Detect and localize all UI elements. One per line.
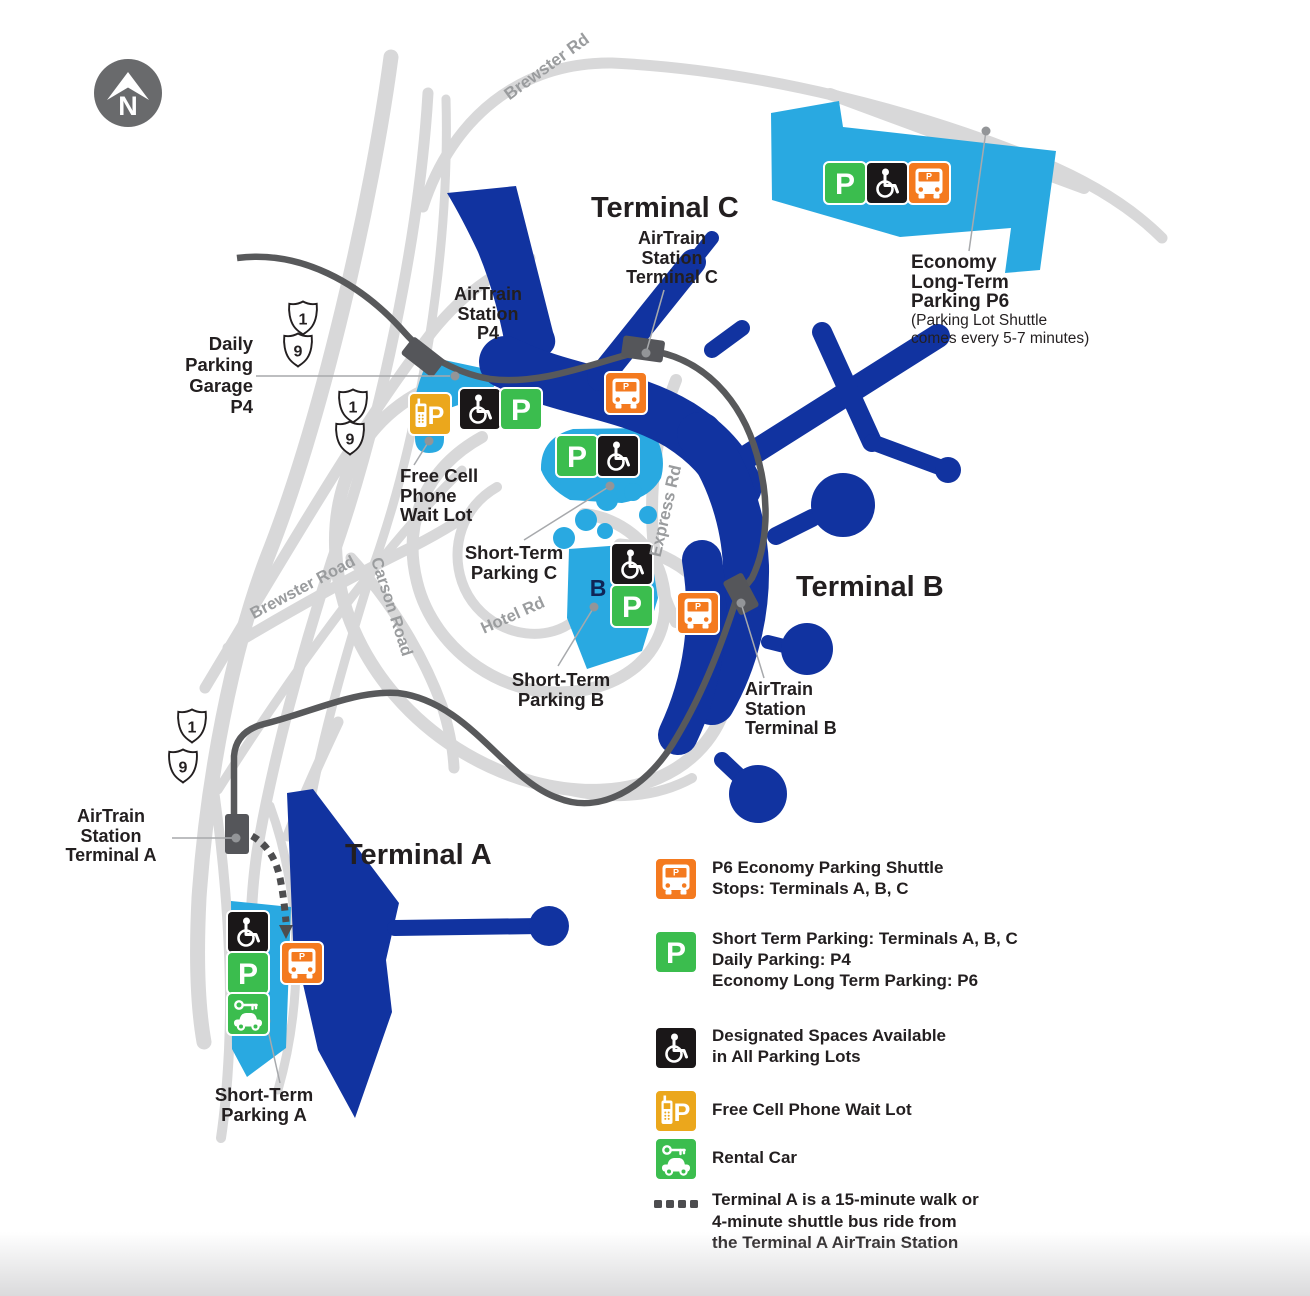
rental-car-icon bbox=[655, 1138, 697, 1180]
rental-car-icon bbox=[227, 993, 269, 1035]
free-cell-phone-label: Free Cell Phone Wait Lot bbox=[400, 466, 478, 525]
compass-north-icon: N bbox=[94, 59, 162, 127]
short-term-parking-icon bbox=[824, 162, 866, 204]
airport-parking-map: P P bbox=[0, 0, 1310, 1296]
airtrain-station-c-label: AirTrain Station Terminal C bbox=[612, 229, 732, 288]
accessible-parking-icon bbox=[597, 435, 639, 477]
cell-phone-lot-icon bbox=[409, 393, 451, 435]
legend-ada-text: Designated Spaces Available in All Parki… bbox=[712, 1025, 946, 1067]
parking-shuttle-icon bbox=[605, 372, 647, 414]
parking-shuttle-icon bbox=[655, 858, 697, 900]
route-shield-number: 9 bbox=[294, 344, 303, 361]
accessible-parking-icon bbox=[227, 911, 269, 953]
parking-shuttle-icon bbox=[908, 162, 950, 204]
short-term-parking-icon bbox=[611, 585, 653, 627]
airtrain-station-p4-label: AirTrain Station P4 bbox=[442, 285, 534, 344]
daily-parking-p4-label: Daily Parking Garage P4 bbox=[160, 333, 253, 417]
airtrain-station-a-label: AirTrain Station Terminal A bbox=[50, 807, 172, 866]
accessible-parking-icon bbox=[866, 162, 908, 204]
economy-p6-label: Economy Long-Term Parking P6 bbox=[911, 253, 1009, 312]
legend-cell-text: Free Cell Phone Wait Lot bbox=[712, 1099, 912, 1120]
short-term-parking-icon bbox=[500, 388, 542, 430]
terminal-a-label: Terminal A bbox=[345, 840, 492, 870]
terminal-b-label: Terminal B bbox=[796, 572, 944, 602]
legend-shuttle-text: P6 Economy Parking Shuttle Stops: Termin… bbox=[712, 857, 943, 899]
accessible-parking-icon bbox=[459, 388, 501, 430]
compass-letter: N bbox=[118, 91, 138, 121]
cell-phone-lot-icon bbox=[655, 1090, 697, 1132]
accessible-parking-icon bbox=[655, 1027, 697, 1069]
short-term-parking-icon bbox=[227, 952, 269, 994]
legend-rental-text: Rental Car bbox=[712, 1147, 797, 1168]
route-shield-number: 9 bbox=[179, 760, 188, 777]
legend-parking-text: Short Term Parking: Terminals A, B, C Da… bbox=[712, 928, 1018, 991]
short-term-parking-c-label: Short-Term Parking C bbox=[452, 543, 576, 582]
short-term-parking-icon bbox=[556, 435, 598, 477]
route-shield-number: 9 bbox=[346, 432, 355, 449]
parking-shuttle-icon bbox=[677, 592, 719, 634]
terminal-c-label: Terminal C bbox=[591, 193, 739, 223]
short-term-parking-b-label: Short-Term Parking B bbox=[500, 670, 622, 709]
route-shield-number: 1 bbox=[299, 312, 308, 329]
walkway-dash-swatch bbox=[654, 1200, 698, 1208]
route-shield-number: 1 bbox=[349, 400, 358, 417]
bottom-fade bbox=[0, 1232, 1310, 1296]
parking-shuttle-icon bbox=[281, 942, 323, 984]
short-term-parking-icon bbox=[655, 931, 697, 973]
short-term-parking-a-label: Short-Term Parking A bbox=[202, 1085, 326, 1124]
lot-b-letter: B bbox=[590, 575, 607, 601]
route-shield-number: 1 bbox=[188, 720, 197, 737]
legend-icons bbox=[654, 858, 698, 1208]
airtrain-station-b-label: AirTrain Station Terminal B bbox=[745, 680, 837, 739]
economy-p6-note: (Parking Lot Shuttle comes every 5-7 min… bbox=[911, 312, 1089, 348]
